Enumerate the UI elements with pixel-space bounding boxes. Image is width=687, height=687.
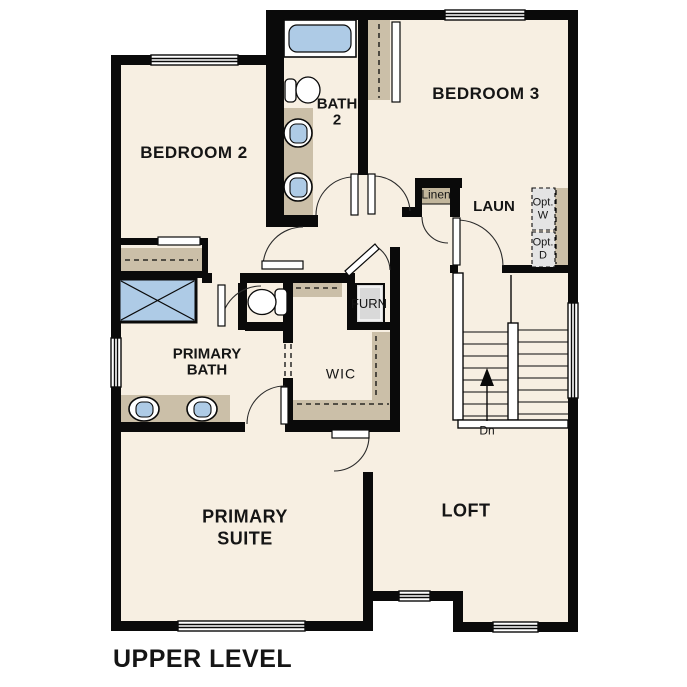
room-label-laundry: LAUN [473,199,515,215]
optional-washer-line2: W [533,209,554,222]
toilet [248,289,287,315]
room-label-bedroom-3: BEDROOM 3 [432,85,539,103]
label-optional-washer: Opt. W [533,196,554,221]
room-label-bedroom-2: BEDROOM 2 [140,144,247,162]
laundry-shelf [555,188,568,267]
window [445,10,525,20]
primary-suite-line1: PRIMARY [202,506,288,528]
closet-label-linen: Linen [421,189,450,202]
floor-plan: BEDROOM 2 BEDROOM 3 BATH 2 LAUN Linen Op… [0,0,687,687]
primary-bath-line2: BATH [173,362,242,378]
room-label-bath-2: BATH 2 [317,96,358,128]
room-label-primary-bath: PRIMARY BATH [173,346,242,378]
bathtub [284,20,356,57]
shower [119,279,196,322]
room-label-loft: LOFT [442,502,491,521]
page-title: UPPER LEVEL [113,645,292,674]
window [568,303,578,398]
window [178,621,305,631]
sink [129,397,159,421]
toilet [285,77,320,103]
optional-dryer-line1: Opt. [533,236,554,249]
room-label-primary-suite: PRIMARY SUITE [202,506,288,549]
sink [284,173,312,201]
optional-dryer-line2: D [533,249,554,262]
wic-shelf-right [372,332,392,400]
primary-bath-line1: PRIMARY [173,346,242,362]
window [151,55,238,65]
window [399,591,430,601]
sink [187,397,217,421]
primary-suite-line2: SUITE [202,528,288,550]
window [493,622,538,632]
room-label-bath-2-line1: BATH [317,96,358,112]
window [111,338,121,387]
label-optional-dryer: Opt. D [533,236,554,261]
closet-label-furnace: FURN [351,297,387,311]
sink [284,119,312,147]
stairs-down-label: Dn [479,425,494,438]
room-label-bath-2-line2: 2 [317,112,358,128]
optional-washer-line1: Opt. [533,196,554,209]
wic-shelf-bottom [293,400,393,420]
room-label-wic: WIC [326,367,356,382]
